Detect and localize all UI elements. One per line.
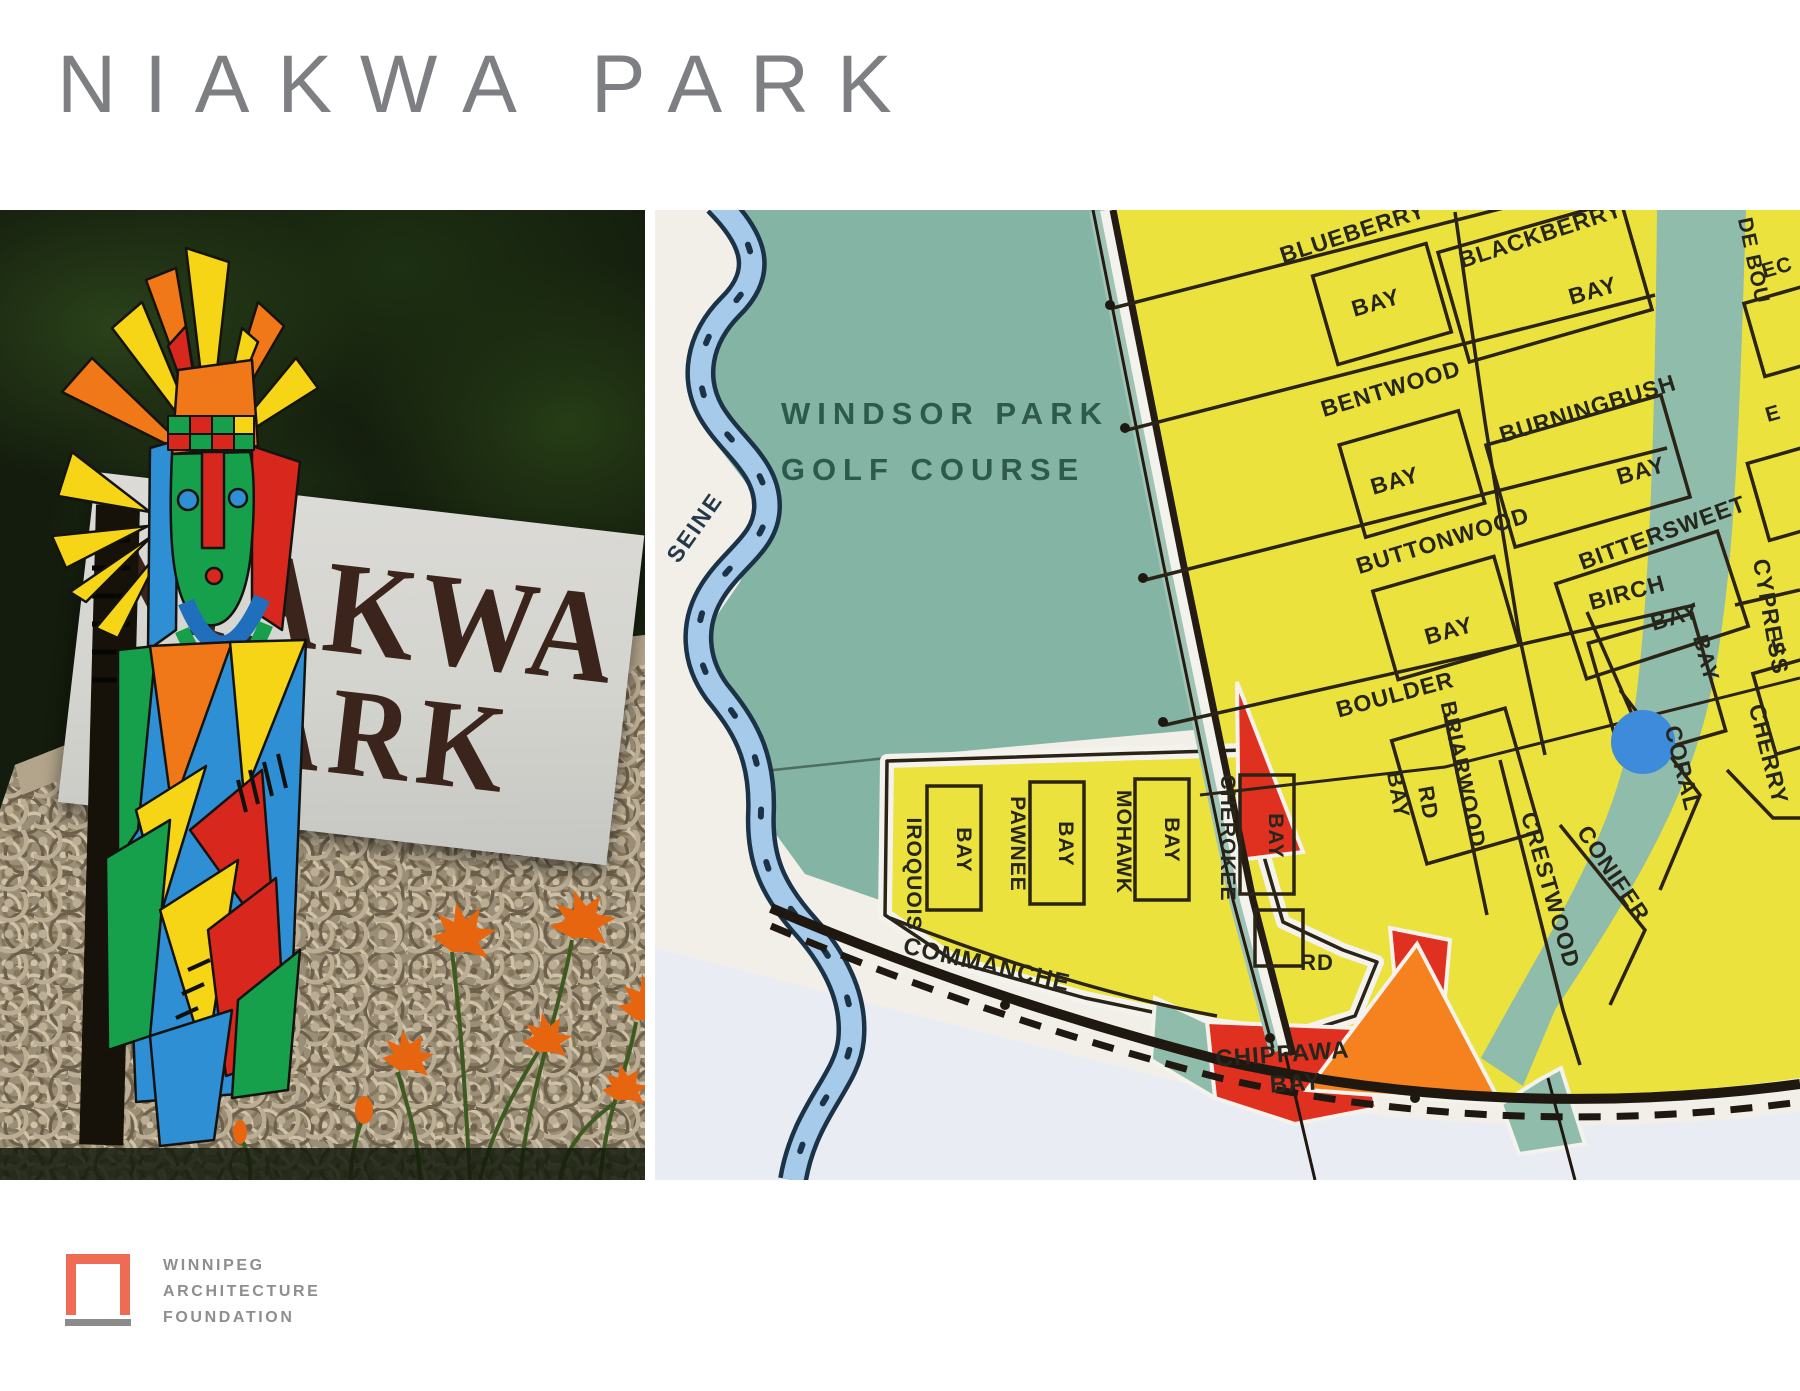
winnipeg-architecture-foundation-logo: WINNIPEG ARCHITECTURE FOUNDATION — [63, 1251, 320, 1331]
street-label: RD — [1300, 950, 1334, 975]
street-label: BAY — [1054, 821, 1077, 866]
logo-line3: FOUNDATION — [163, 1305, 320, 1331]
neighbourhood-map: WINDSOR PARKGOLF COURSESEINEBLUEBERRYBAY… — [655, 210, 1800, 1180]
street-label: BAY — [1160, 817, 1183, 862]
page-title: NIAKWA PARK — [57, 38, 920, 132]
street-label: BAY — [952, 827, 975, 872]
slide-page: NIAKWA PARK NIAKWA PARK — [0, 0, 1800, 1391]
street-label: GOLF COURSE — [781, 452, 1085, 487]
street-label: MOHAWK — [1112, 790, 1135, 894]
street-label: PAWNEE — [1006, 796, 1029, 891]
waf-arch-icon — [63, 1251, 135, 1331]
logo-text: WINNIPEG ARCHITECTURE FOUNDATION — [163, 1253, 320, 1331]
totem-sculpture-and-flowers — [0, 210, 645, 1180]
street-label: BAY — [1269, 1068, 1322, 1099]
entrance-photo: NIAKWA PARK — [0, 210, 645, 1180]
map-drawing: WINDSOR PARKGOLF COURSESEINEBLUEBERRYBAY… — [655, 210, 1800, 1180]
street-label: BAY — [1264, 813, 1287, 858]
street-label: IROQUOIS — [902, 817, 925, 930]
street-label: WINDSOR PARK — [781, 396, 1109, 431]
logo-line2: ARCHITECTURE — [163, 1279, 320, 1305]
logo-line1: WINNIPEG — [163, 1253, 320, 1279]
grass-shadow — [0, 1148, 645, 1180]
street-label: CHEROKEE — [1216, 774, 1239, 901]
